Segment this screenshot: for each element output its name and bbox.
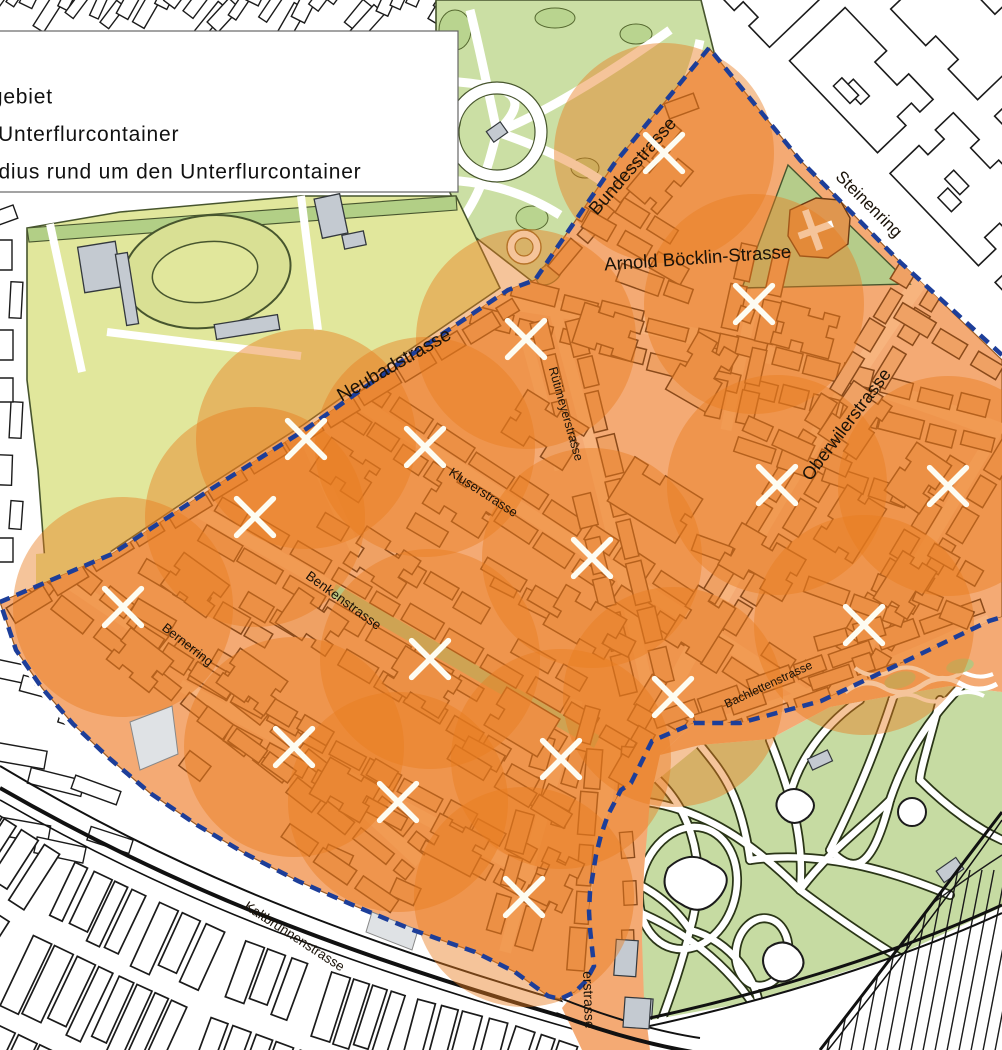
svg-text:Pilotgebiet: Pilotgebiet xyxy=(0,86,53,109)
svg-text:erstrasse: erstrasse xyxy=(580,971,598,1029)
svg-text:Unterflurcontainer: Unterflurcontainer xyxy=(0,123,179,146)
svg-text:Radius rund um den Unterflurco: Radius rund um den Unterflurcontainer xyxy=(0,161,361,184)
